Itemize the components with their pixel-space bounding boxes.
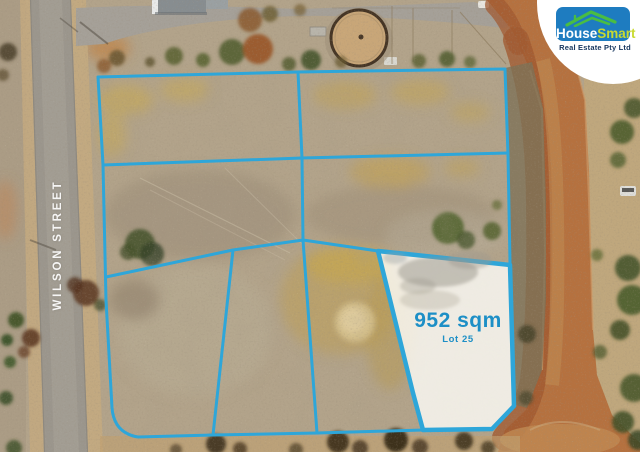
logo-brand: HouseSmart [556, 27, 630, 41]
aerial-scene [0, 0, 640, 452]
light-speckle [0, 0, 640, 452]
logo-smart-text: Smart [597, 26, 635, 41]
highlighted-lot-label: 952 sqm Lot 25 [388, 310, 528, 345]
lot-number-text: Lot 25 [388, 334, 528, 345]
street-label: WILSON STREET [52, 175, 70, 315]
aerial-photo: WILSON STREET 952 sqm Lot 25 HouseSmart … [0, 0, 640, 452]
logo-house-text: House [556, 26, 597, 41]
roof-icon [565, 9, 621, 27]
logo-tagline: Real Estate Pty Ltd [549, 43, 640, 52]
lot-area-text: 952 sqm [388, 310, 528, 332]
housesmart-logo: HouseSmart [556, 7, 630, 41]
